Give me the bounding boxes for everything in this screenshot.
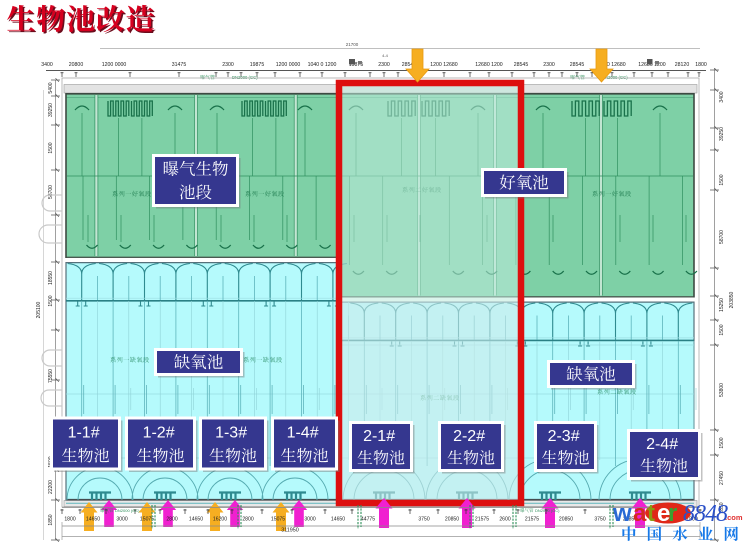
svg-text:2-4#: 2-4#	[646, 436, 678, 453]
svg-text:1800: 1800	[695, 62, 707, 68]
svg-text:44775: 44775	[361, 517, 375, 523]
svg-text:311950: 311950	[281, 528, 299, 534]
svg-text:3750: 3750	[594, 517, 605, 523]
svg-text:2300: 2300	[378, 62, 390, 68]
svg-text:4-4: 4-4	[382, 53, 389, 58]
svg-text:1200 0000: 1200 0000	[276, 62, 301, 68]
svg-text:a: a	[633, 500, 647, 527]
svg-text:2800: 2800	[166, 517, 177, 523]
svg-text:39250: 39250	[48, 103, 54, 117]
svg-text:2-1#: 2-1#	[363, 428, 395, 445]
svg-text:53800: 53800	[719, 383, 725, 397]
svg-text:39250: 39250	[719, 127, 725, 141]
svg-text:w: w	[612, 500, 632, 527]
svg-text:3750: 3750	[418, 517, 429, 523]
svg-text:2300: 2300	[222, 62, 234, 68]
svg-text:1500: 1500	[719, 324, 725, 335]
svg-text:r: r	[668, 500, 677, 527]
svg-text:14650: 14650	[331, 517, 345, 523]
svg-text:21700: 21700	[346, 42, 359, 47]
svg-text:31475: 31475	[172, 62, 187, 68]
svg-text:20800: 20800	[69, 62, 84, 68]
svg-text:21575: 21575	[525, 517, 539, 523]
svg-text:205100: 205100	[36, 301, 42, 318]
svg-text:3400: 3400	[41, 62, 53, 68]
svg-text:1200 12680: 1200 12680	[430, 62, 458, 68]
svg-text:1850: 1850	[48, 514, 54, 525]
svg-text:DN2000 (GC): DN2000 (GC)	[115, 508, 140, 513]
svg-text:1-1#: 1-1#	[68, 424, 100, 441]
svg-text:8848: 8848	[683, 501, 728, 527]
svg-text:1800: 1800	[64, 517, 75, 523]
svg-text:2300: 2300	[543, 62, 555, 68]
svg-text:18550: 18550	[48, 271, 54, 285]
svg-text:27450: 27450	[719, 471, 725, 485]
svg-text:58700: 58700	[48, 185, 54, 199]
svg-text:1500: 1500	[719, 437, 725, 448]
svg-text:75550: 75550	[48, 369, 54, 383]
svg-text:5400: 5400	[48, 82, 54, 93]
svg-text:20850: 20850	[445, 517, 459, 523]
svg-text:DN2000 (GC): DN2000 (GC)	[535, 508, 560, 513]
svg-text:28120: 28120	[675, 62, 690, 68]
svg-text:3000: 3000	[304, 517, 315, 523]
svg-text:19875: 19875	[250, 62, 265, 68]
svg-text:1200 0000: 1200 0000	[102, 62, 127, 68]
svg-text:1500: 1500	[48, 142, 54, 153]
svg-text:21575: 21575	[475, 517, 489, 523]
svg-text:22200: 22200	[48, 480, 54, 494]
svg-text:1500: 1500	[719, 174, 725, 185]
svg-text:28545: 28545	[514, 62, 529, 68]
svg-text:12680 1200: 12680 1200	[475, 62, 503, 68]
svg-text:16200: 16200	[213, 517, 227, 523]
svg-text:3400: 3400	[719, 91, 725, 102]
svg-text:14650: 14650	[86, 517, 100, 523]
svg-text:.com: .com	[725, 513, 743, 522]
svg-text:2600: 2600	[499, 517, 510, 523]
svg-text:14650: 14650	[189, 517, 203, 523]
svg-text:20850: 20850	[559, 517, 573, 523]
svg-text:2-3#: 2-3#	[548, 428, 580, 445]
svg-text:1040 0 1200: 1040 0 1200	[308, 62, 337, 68]
svg-text:DN2000 (GC): DN2000 (GC)	[232, 75, 258, 80]
svg-text:15250: 15250	[719, 298, 725, 312]
svg-text:58700: 58700	[719, 230, 725, 244]
svg-text:1-2#: 1-2#	[143, 424, 175, 441]
svg-text:203850: 203850	[729, 291, 735, 308]
svg-text:t: t	[647, 500, 655, 527]
svg-text:1-4#: 1-4#	[287, 424, 319, 441]
svg-text:1-3#: 1-3#	[215, 424, 247, 441]
svg-text:28545: 28545	[570, 62, 585, 68]
svg-text:2800: 2800	[242, 517, 253, 523]
svg-text:1500: 1500	[48, 295, 54, 306]
svg-text:2-2#: 2-2#	[453, 428, 485, 445]
svg-text:3000: 3000	[116, 517, 127, 523]
svg-text:15075: 15075	[271, 517, 285, 523]
